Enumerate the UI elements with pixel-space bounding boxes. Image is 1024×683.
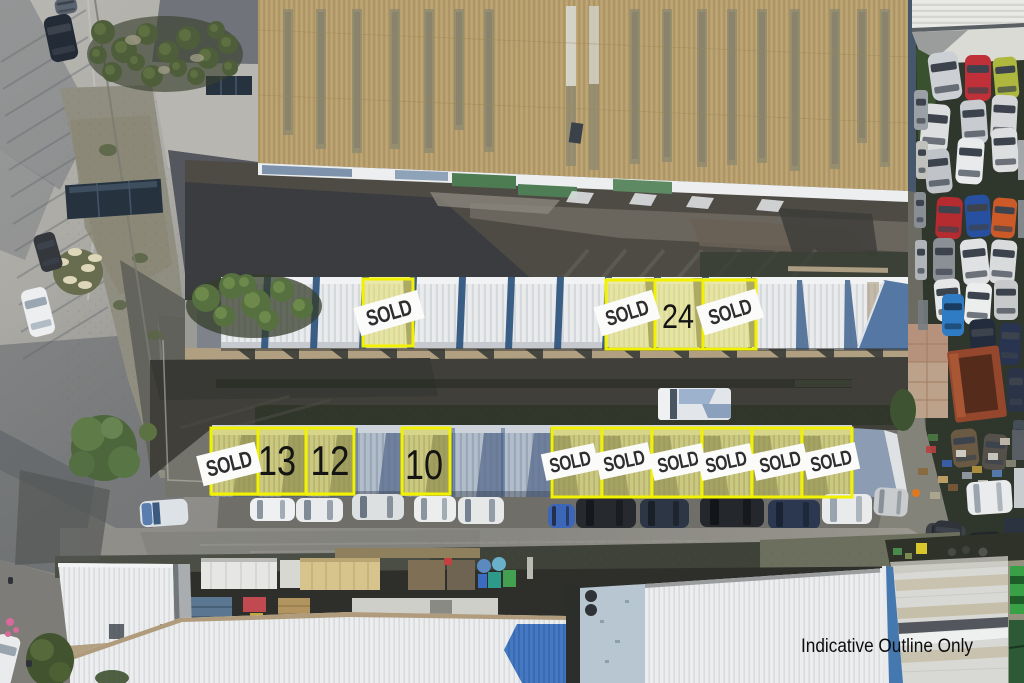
svg-text:24: 24 (662, 298, 694, 336)
svg-text:10: 10 (405, 441, 443, 488)
svg-text:12: 12 (311, 437, 350, 484)
svg-text:Indicative Outline Only: Indicative Outline Only (801, 636, 973, 657)
svg-text:13: 13 (258, 437, 296, 484)
